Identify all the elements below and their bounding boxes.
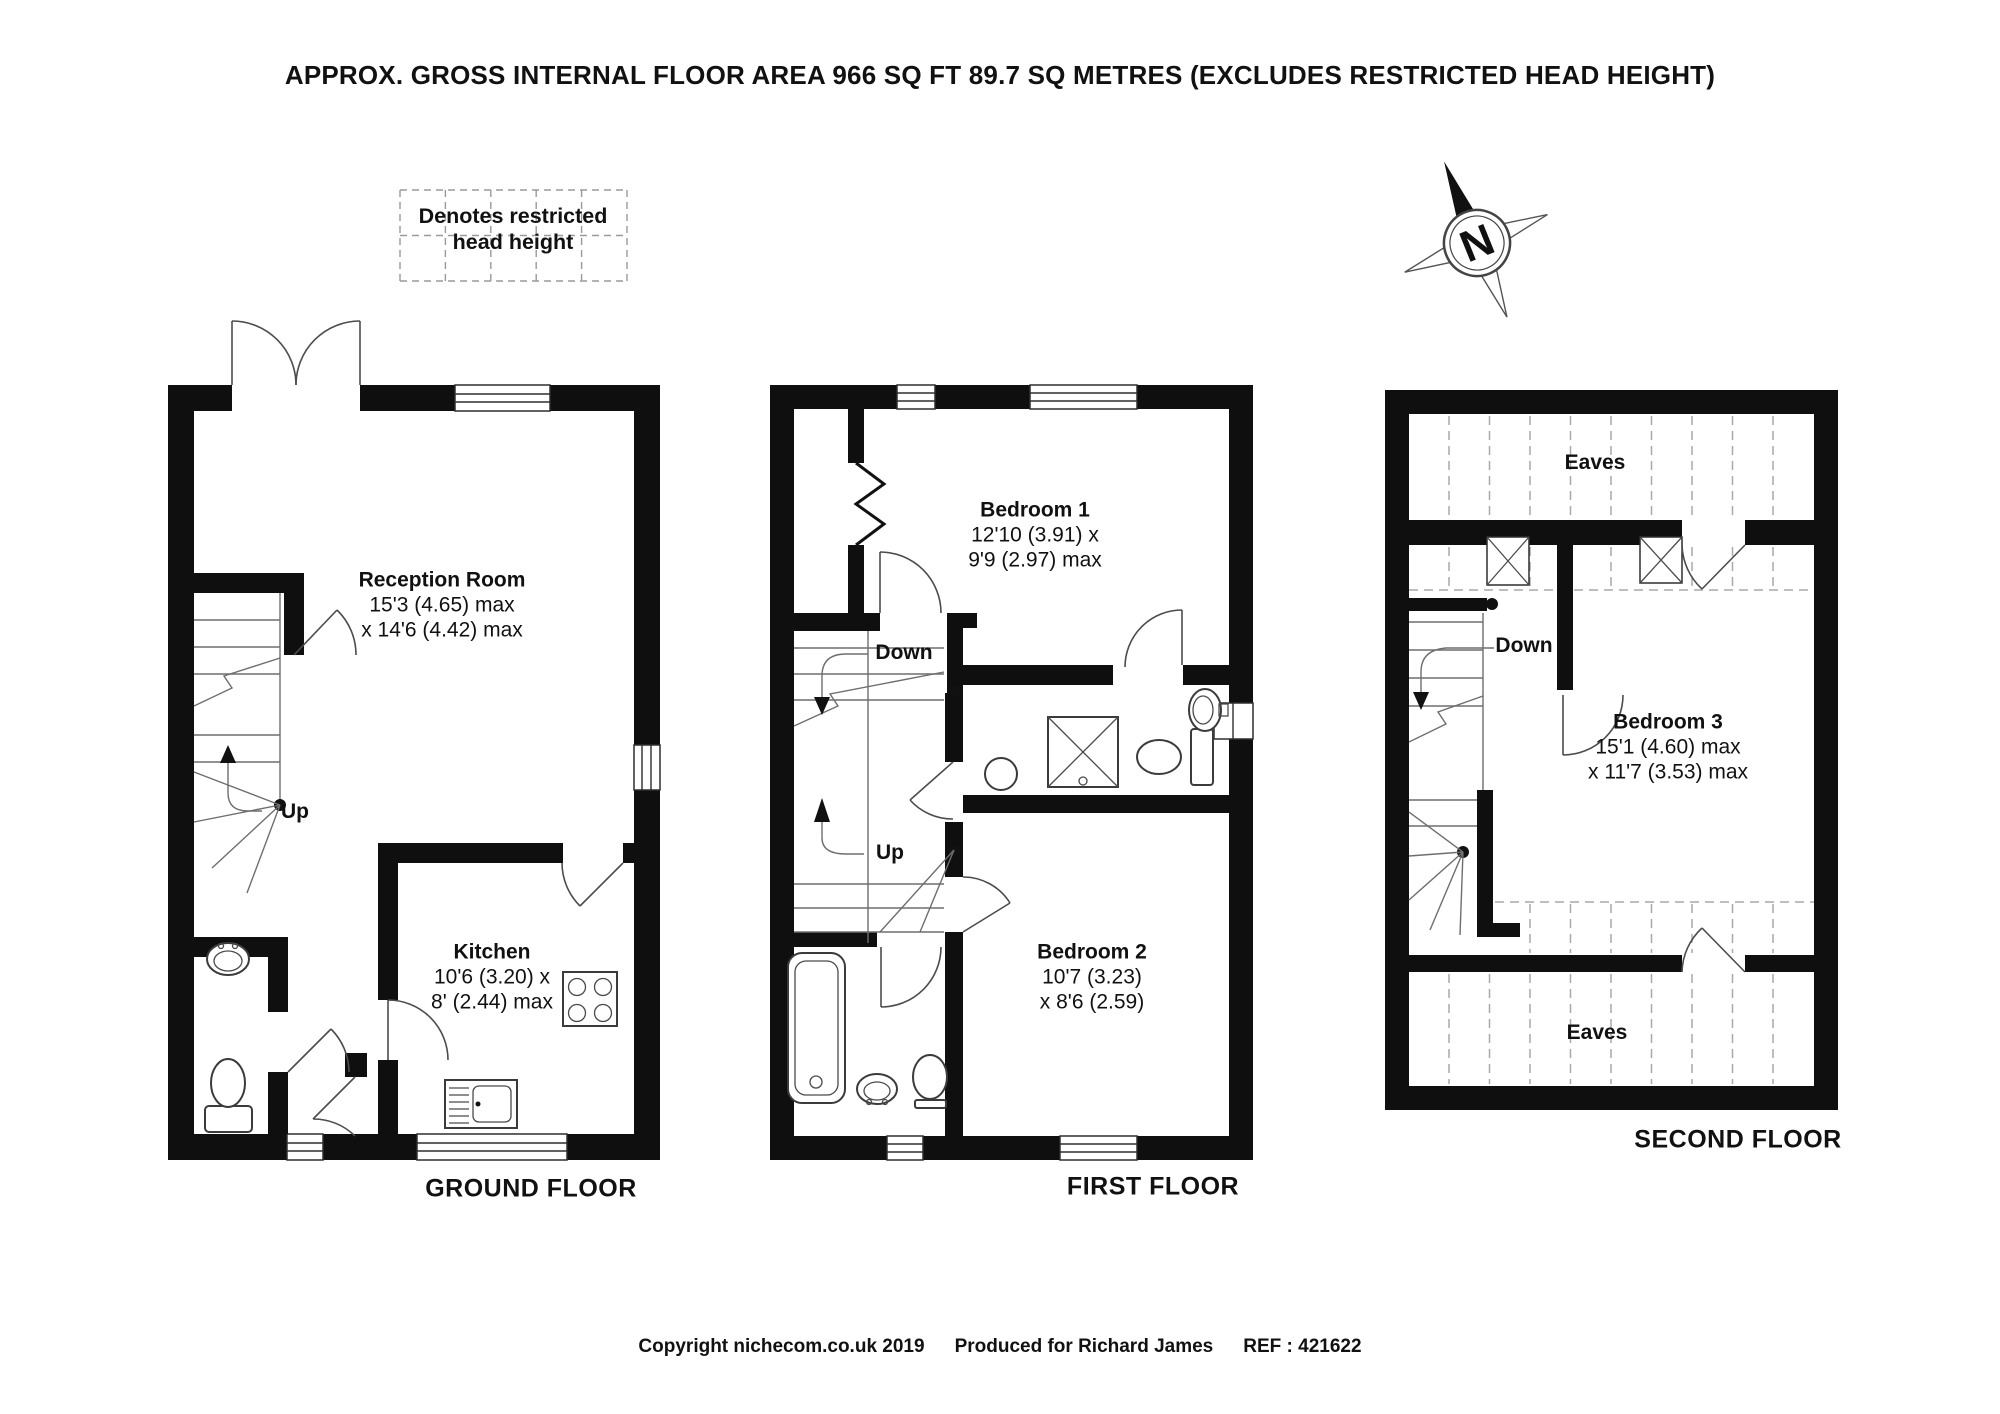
ground-floor-plan: [168, 321, 660, 1160]
room-name: Bedroom 2: [1037, 940, 1147, 965]
eaves-label-top: Eaves: [1565, 451, 1626, 475]
room-dims: 15'3 (4.65) max: [359, 593, 526, 618]
bathtub-icon: [788, 953, 845, 1103]
footer: Copyright nichecom.co.uk 2019 Produced f…: [0, 1336, 2000, 1358]
room-dims: 10'6 (3.20) x: [431, 965, 553, 990]
room-name: Bedroom 3: [1588, 710, 1748, 735]
footer-produced-for: Produced for Richard James: [955, 1336, 1214, 1358]
room-label-bedroom2: Bedroom 2 10'7 (3.23) x 8'6 (2.59): [1037, 940, 1147, 1015]
caption-ground-floor: GROUND FLOOR: [425, 1175, 637, 1204]
toilet-icon: [1137, 729, 1213, 785]
room-label-reception: Reception Room 15'3 (4.65) max x 14'6 (4…: [359, 568, 526, 643]
page-title: APPROX. GROSS INTERNAL FLOOR AREA 966 SQ…: [0, 60, 2000, 91]
sink-icon: [207, 943, 249, 975]
floorplan-page: N: [0, 0, 2000, 1414]
hob-icon: [563, 972, 617, 1026]
room-dims: x 8'6 (2.59): [1037, 990, 1147, 1015]
room-dims: x 14'6 (4.42) max: [359, 618, 526, 643]
staircase-icon: [194, 593, 286, 893]
footer-copyright: Copyright nichecom.co.uk 2019: [638, 1336, 924, 1358]
floorplan-drawing: N: [0, 0, 2000, 1414]
stair-label-up-ground: Up: [281, 800, 309, 824]
legend-label: Denotes restricted head height: [404, 203, 622, 255]
room-dims: 10'7 (3.23): [1037, 965, 1147, 990]
eaves-label-bottom: Eaves: [1567, 1021, 1628, 1045]
stair-label-down-first: Down: [875, 641, 932, 665]
shower-icon: [1048, 717, 1118, 787]
room-name: Bedroom 1: [968, 498, 1102, 523]
room-label-bedroom3: Bedroom 3 15'1 (4.60) max x 11'7 (3.53) …: [1588, 710, 1748, 785]
toilet-icon: [205, 1059, 252, 1132]
room-dims: 12'10 (3.91) x: [968, 523, 1102, 548]
room-name: Kitchen: [431, 940, 553, 965]
caption-second-floor: SECOND FLOOR: [1634, 1126, 1841, 1155]
basin-icon: [985, 758, 1017, 790]
room-dims: 8' (2.44) max: [431, 990, 553, 1015]
stair-label-up-first: Up: [876, 841, 904, 865]
room-name: Reception Room: [359, 568, 526, 593]
stair-label-down-second: Down: [1495, 634, 1552, 658]
door-icon: [288, 610, 623, 1136]
entrance-double-door-icon: [232, 321, 360, 385]
room-dims: x 11'7 (3.53) max: [1588, 760, 1748, 785]
staircase-icon: [794, 631, 960, 943]
footer-ref: REF : 421622: [1243, 1336, 1361, 1358]
north-compass-icon: N: [1372, 133, 1578, 346]
kitchen-sink-icon: [445, 1080, 517, 1128]
sink-icon: [857, 1074, 897, 1105]
room-label-bedroom1: Bedroom 1 12'10 (3.91) x 9'9 (2.97) max: [968, 498, 1102, 573]
toilet-icon: [913, 1055, 947, 1108]
caption-first-floor: FIRST FLOOR: [1067, 1173, 1239, 1202]
bifold-door-icon: [856, 463, 884, 545]
room-dims: 9'9 (2.97) max: [968, 548, 1102, 573]
room-label-kitchen: Kitchen 10'6 (3.20) x 8' (2.44) max: [431, 940, 553, 1015]
room-dims: 15'1 (4.60) max: [1588, 735, 1748, 760]
